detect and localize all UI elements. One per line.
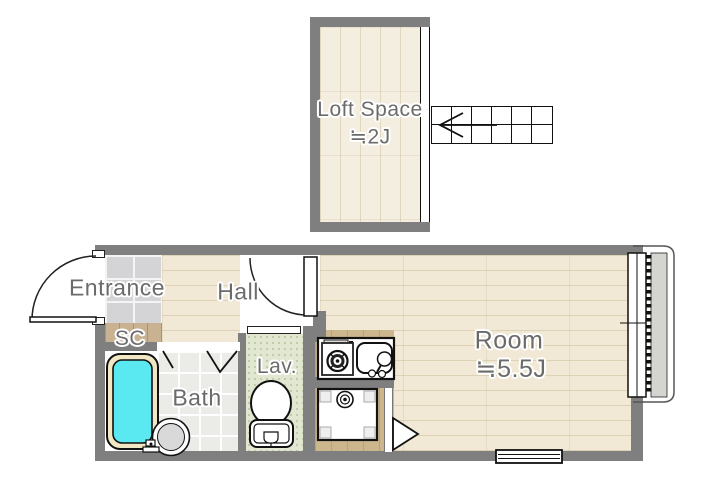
- door-jamb-bottom: [92, 317, 105, 325]
- loft-size-label: ≒2J: [349, 125, 390, 150]
- room-size-label: ≒5.5J: [476, 354, 547, 384]
- loft-label: Loft Space: [317, 98, 422, 122]
- kitchen-floor: [315, 330, 394, 451]
- lav-right-wall: [303, 326, 315, 451]
- ladder-opening-icon: [420, 27, 430, 222]
- lavatory-label: Lav.: [257, 355, 297, 379]
- entrance-label: Entrance: [69, 275, 165, 302]
- bath-door-gap: [157, 342, 240, 351]
- floor-plan: Loft Space ≒2J Entrance SC Hall Bath Lav…: [0, 0, 701, 484]
- kitchen-door-icon: [384, 388, 393, 452]
- hall-label: Hall: [217, 279, 259, 306]
- door-jamb-top: [92, 250, 105, 258]
- bath-label: Bath: [172, 385, 221, 412]
- lavatory-floor: [246, 334, 303, 451]
- staircase-icon: [431, 106, 553, 144]
- sliding-lav-door-icon: [247, 326, 301, 334]
- kitchen-wall: [315, 377, 394, 388]
- bathtub-zone: [105, 351, 157, 451]
- shoe-closet-label: SC: [115, 327, 145, 351]
- room-label: Room: [475, 327, 544, 356]
